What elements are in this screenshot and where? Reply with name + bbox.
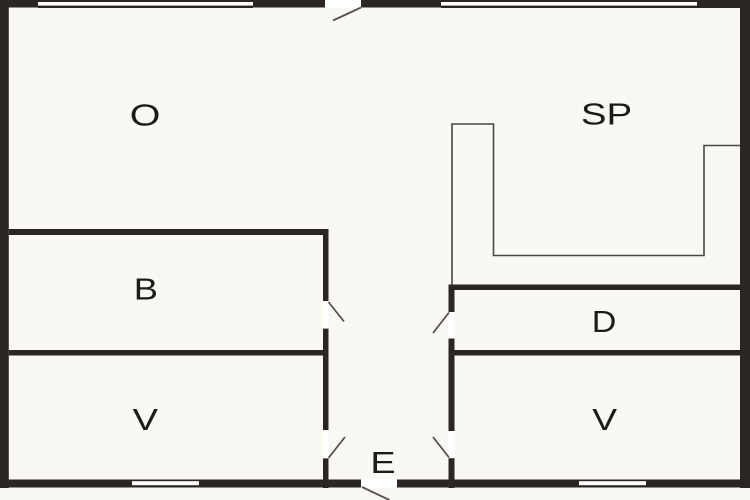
- svg-text:SP: SP: [581, 97, 632, 132]
- svg-text:V: V: [133, 403, 159, 437]
- svg-text:E: E: [370, 446, 395, 480]
- svg-text:D: D: [592, 304, 617, 338]
- svg-text:V: V: [592, 403, 617, 437]
- svg-text:O: O: [130, 97, 161, 132]
- svg-text:B: B: [134, 272, 158, 307]
